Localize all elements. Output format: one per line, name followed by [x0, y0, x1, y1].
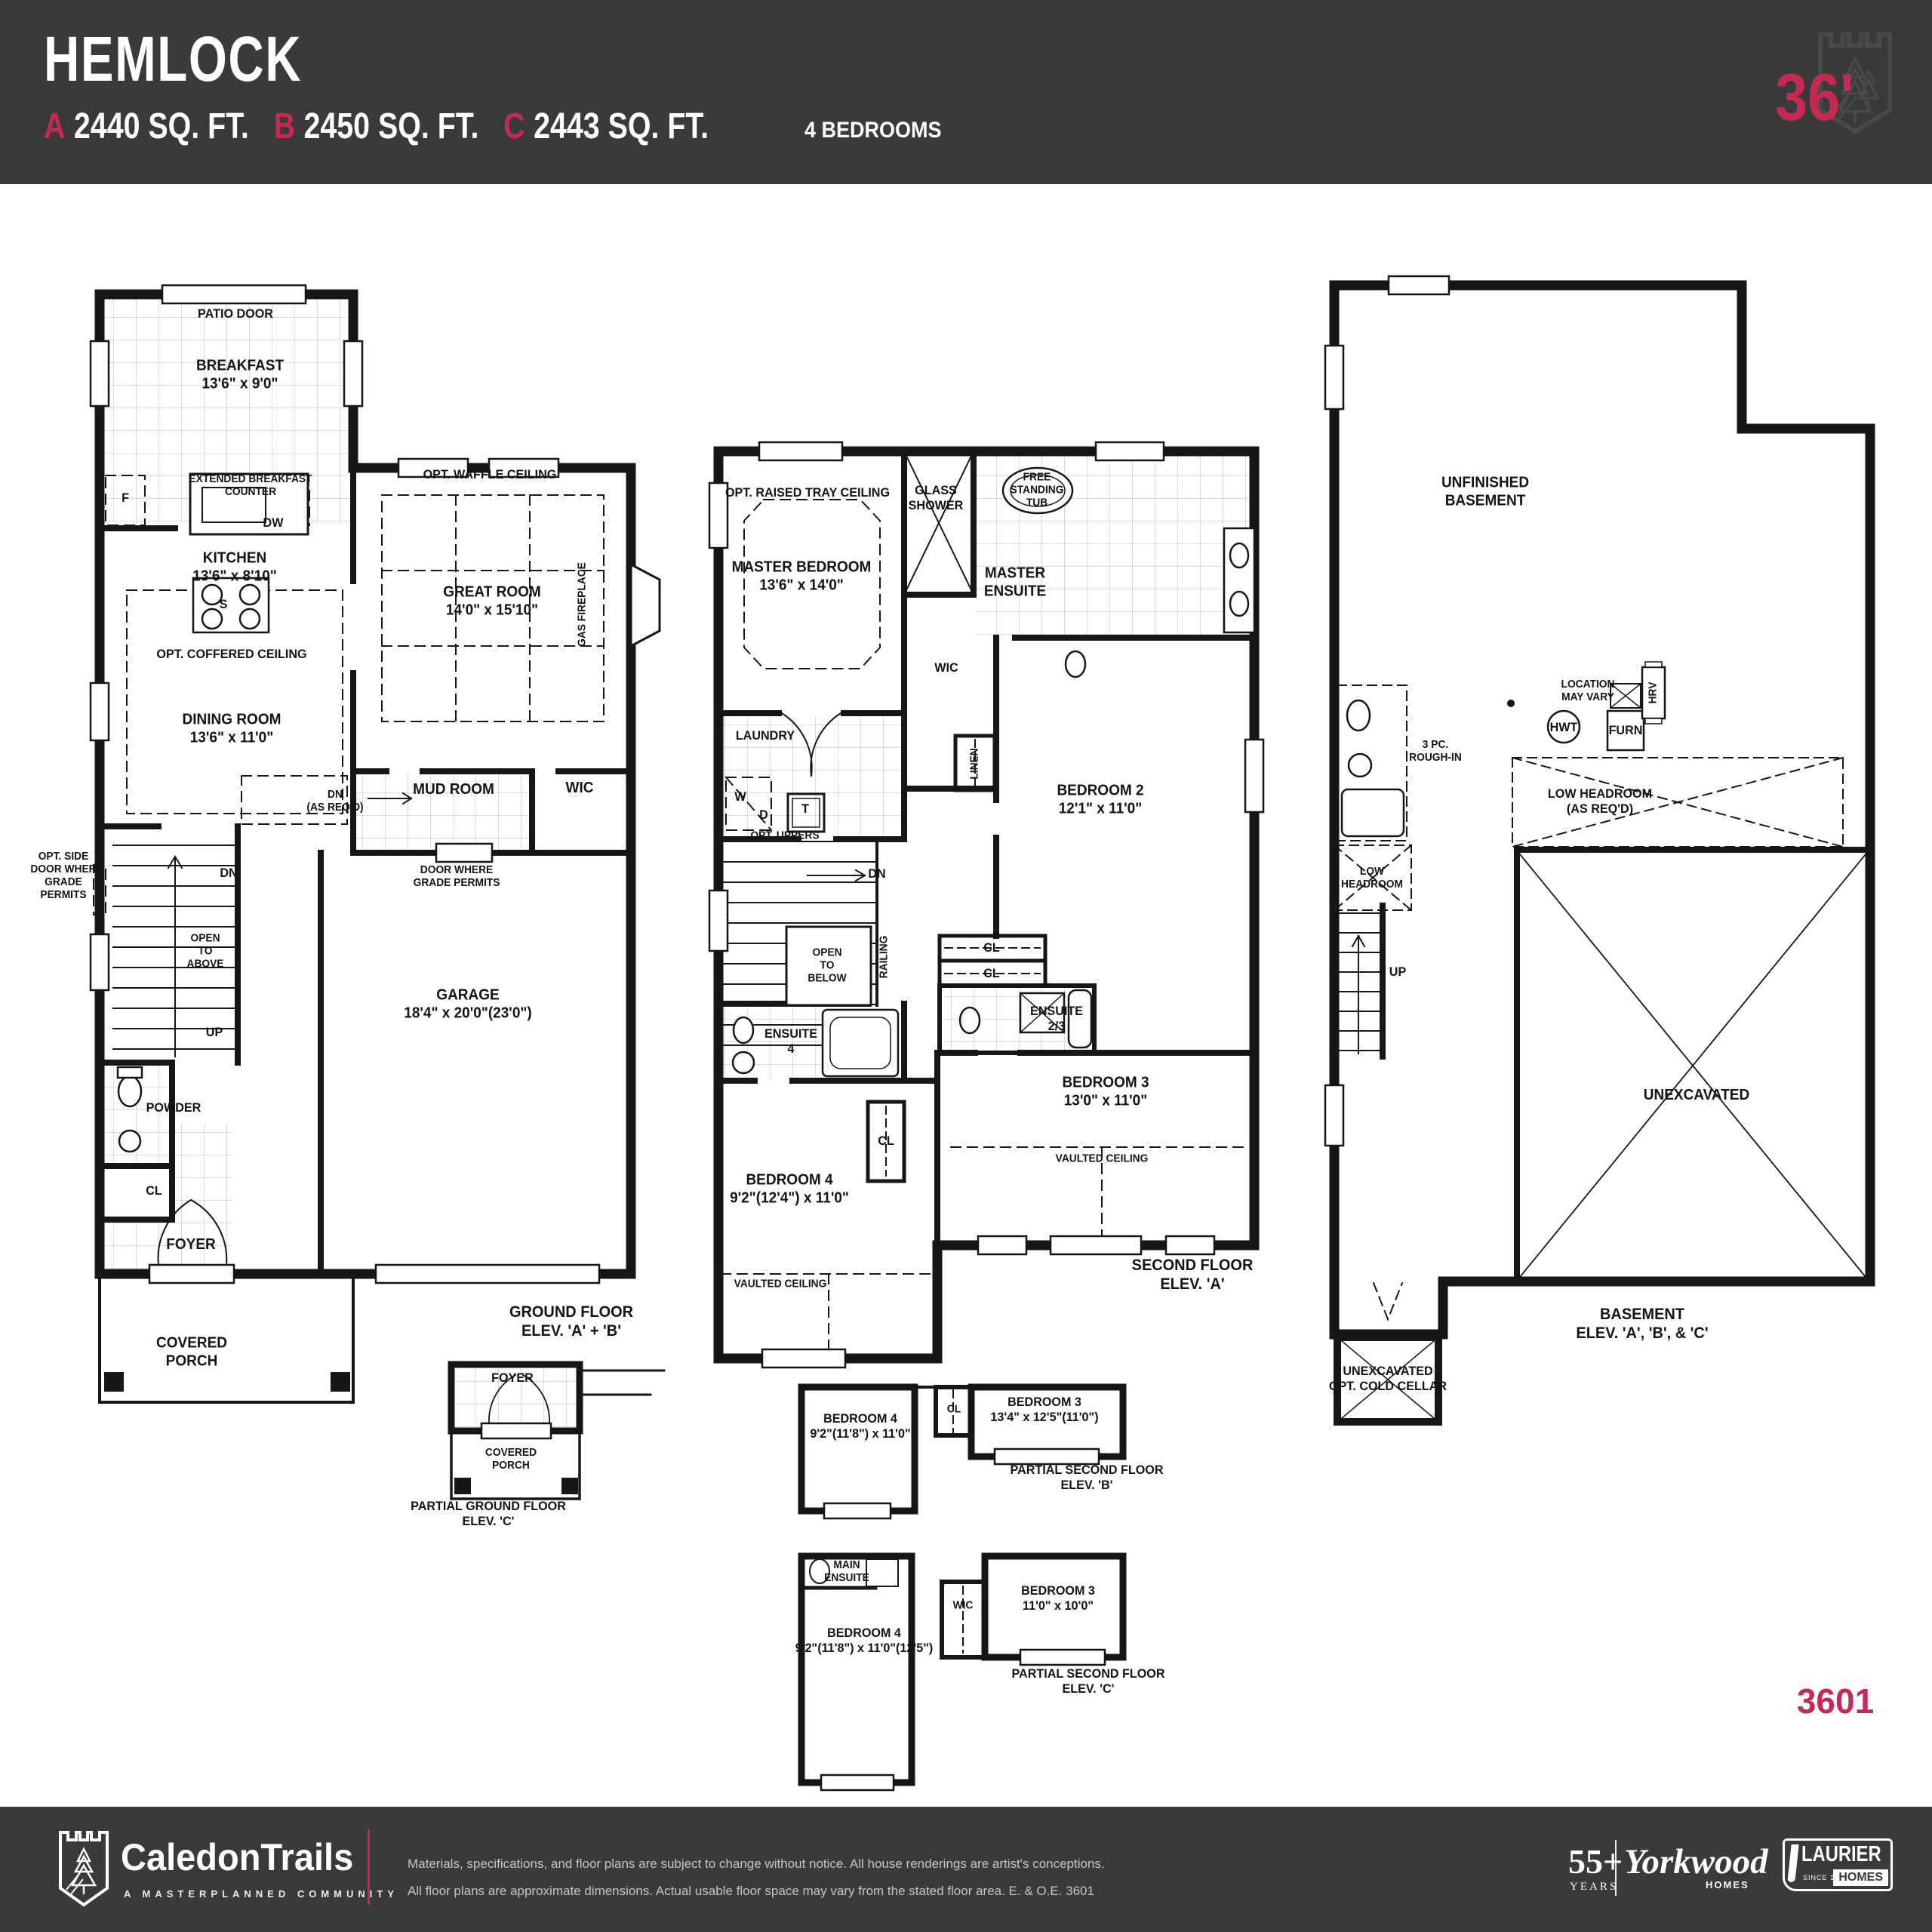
room-label-kitchen: KITCHEN 13'6" x 8'10"	[192, 549, 277, 585]
room-label-bedroom4-c: BEDROOM 4 9'2"(11'8") x 11'0"(12'5")	[795, 1626, 933, 1656]
note-label-coffered-ceiling: OPT. COFFERED CEILING	[156, 647, 306, 662]
room-label-ensuite23: ENSUITE 2/3	[1030, 1004, 1083, 1034]
note-label-vaulted4: VAULTED CEILING	[734, 1278, 827, 1291]
room-label-bedroom3-c: BEDROOM 3 11'0" x 10'0"	[1021, 1583, 1095, 1614]
note-label-location-may-vary: LOCATION MAY VARY	[1561, 678, 1615, 704]
room-label-wic-c: WIC	[953, 1599, 974, 1612]
room-label-bedroom3-b: BEDROOM 3 13'4" x 12'5"(11'0")	[990, 1395, 1098, 1425]
room-label-cl-b: CL	[947, 1403, 961, 1416]
note-label-tray-ceiling: OPT. RAISED TRAY CEILING	[725, 485, 890, 500]
plan-caption-partial-second-b: PARTIAL SECOND FLOOR ELEV. 'B'	[1010, 1463, 1163, 1493]
plan-caption-basement: BASEMENT ELEV. 'A', 'B', & 'C'	[1576, 1306, 1708, 1343]
note-label-vaulted3: VAULTED CEILING	[1056, 1152, 1149, 1165]
note-label-up: UP	[206, 1025, 223, 1040]
room-label-covered-porch: COVERED PORCH	[156, 1334, 227, 1370]
room-label-linen: LINEN	[968, 748, 981, 779]
room-label-cl1: CL	[983, 940, 1000, 955]
room-label-cl-hall: CL	[878, 1134, 894, 1149]
room-label-unfinished-basement: UNFINISHED BASEMENT	[1441, 474, 1529, 509]
room-label-master-ensuite: MASTER ENSUITE	[984, 565, 1046, 600]
note-label-low-headroom: LOW HEADROOM	[1341, 866, 1403, 891]
room-label-great-room: GREAT ROOM 14'0" x 15'10"	[443, 583, 540, 619]
fixture-label-gas-fireplace: GAS FIREPLACE	[576, 562, 589, 647]
room-label-powder: POWDER	[146, 1100, 202, 1115]
room-label-bedroom3: BEDROOM 3 13'0" x 11'0"	[1062, 1074, 1149, 1109]
note-label-side-door: OPT. SIDE DOOR WHER GRADE PERMITS	[30, 851, 96, 902]
plan-caption-partial-ground-c: PARTIAL GROUND FLOOR ELEV. 'C'	[411, 1499, 566, 1529]
plan-caption-ground: GROUND FLOOR ELEV. 'A' + 'B'	[509, 1303, 633, 1341]
fixture-label-tower: T	[801, 801, 809, 817]
floorplan-sheet: HEMLOCK A 2440 SQ. FT. B 2450 SQ. FT. C …	[0, 0, 1932, 1932]
basement-plan	[1325, 276, 1870, 1422]
room-label-unexcavated: UNEXCAVATED	[1644, 1087, 1749, 1105]
note-label-railing: RAILING	[878, 936, 891, 979]
room-label-foyer: FOYER	[166, 1236, 215, 1254]
room-label-breakfast: BREAKFAST 13'6" x 9'0"	[196, 357, 284, 392]
plan-caption-second: SECOND FLOOR ELEV. 'A'	[1132, 1257, 1254, 1294]
note-label-waffle-ceiling: OPT. WAFFLE CEILING	[423, 467, 557, 482]
room-label-main-ensuite: MAIN ENSUITE	[824, 1559, 869, 1585]
partial-ground-c-plan	[451, 1364, 664, 1499]
room-label-cl2: CL	[983, 966, 1000, 981]
note-label-opt-uppers: OPT. UPPERS	[750, 829, 819, 842]
room-label-wic-ground: WIC	[566, 780, 594, 798]
room-label-master-bedroom: MASTER BEDROOM 13'6" x 14'0"	[732, 558, 872, 594]
note-label-open-to-above: OPEN TO ABOVE	[187, 932, 224, 971]
room-label-garage: GARAGE 18'4" x 20'0"(23'0")	[404, 986, 531, 1022]
ground-floor-plan	[91, 285, 660, 1402]
plan-caption-partial-second-c: PARTIAL SECOND FLOOR ELEV. 'C'	[1011, 1666, 1164, 1697]
caledon-trails-shield-icon	[57, 1826, 110, 1914]
room-label-mud-room: MUD ROOM	[413, 781, 494, 799]
room-label-patio-door: PATIO DOOR	[198, 306, 273, 321]
fixture-label-free-standing-tub: FREE STANDING TUB	[1011, 471, 1064, 509]
fixture-label-washer: W	[734, 789, 746, 804]
note-label-up-basement: UP	[1389, 964, 1406, 980]
note-label-door-grade: DOOR WHERE GRADE PERMITS	[414, 864, 500, 890]
fixture-label-hwt: HWT	[1550, 720, 1578, 735]
plan-linework	[0, 0, 1932, 1932]
note-label-dn: DN	[220, 866, 237, 881]
lot-width-badge: 36'	[1775, 59, 1854, 136]
room-label-porch-c: COVERED PORCH	[485, 1447, 537, 1472]
room-label-bedroom4-b: BEDROOM 4 9'2"(11'8") x 11'0"	[810, 1411, 910, 1441]
room-label-wic-second: WIC	[934, 660, 958, 675]
fixture-label-hrv: HRV	[1647, 682, 1660, 704]
note-label-low-headroom-reqd: LOW HEADROOM (AS REQ'D)	[1548, 786, 1652, 817]
fixture-label-dryer: D	[759, 808, 768, 823]
room-label-ensuite4: ENSUITE 4	[764, 1026, 817, 1057]
room-label-bedroom4: BEDROOM 4 9'2"(12'4") x 11'0"	[730, 1171, 849, 1207]
note-label-open-to-below: OPEN TO BELOW	[808, 946, 846, 985]
room-label-dining: DINING ROOM 13'6" x 11'0"	[183, 711, 281, 746]
fixture-label-dishwasher: DW	[263, 515, 284, 531]
room-label-cl-ground: CL	[146, 1183, 162, 1198]
room-label-extended-counter: EXTENDED BREAKFAST COUNTER	[189, 473, 312, 499]
room-label-cold-cellar: UNEXCAVATED OPT. COLD CELLAR	[1329, 1364, 1447, 1394]
fixture-label-stove: S	[220, 597, 228, 612]
note-label-rough-in: 3 PC. ROUGH-IN	[1409, 739, 1462, 764]
room-label-bedroom2: BEDROOM 2 12'1" x 11'0"	[1057, 782, 1143, 817]
fixture-label-fridge: F	[122, 491, 129, 506]
fixture-label-glass-shower: GLASS SHOWER	[909, 483, 964, 513]
note-label-dn-as-reqd: DN (AS REQ'D)	[306, 789, 363, 814]
fixture-label-furn: FURN	[1609, 723, 1643, 738]
room-label-laundry: LAUNDRY	[736, 728, 795, 743]
room-label-foyer-c: FOYER	[491, 1371, 534, 1386]
note-label-dn-second: DN	[868, 866, 885, 881]
